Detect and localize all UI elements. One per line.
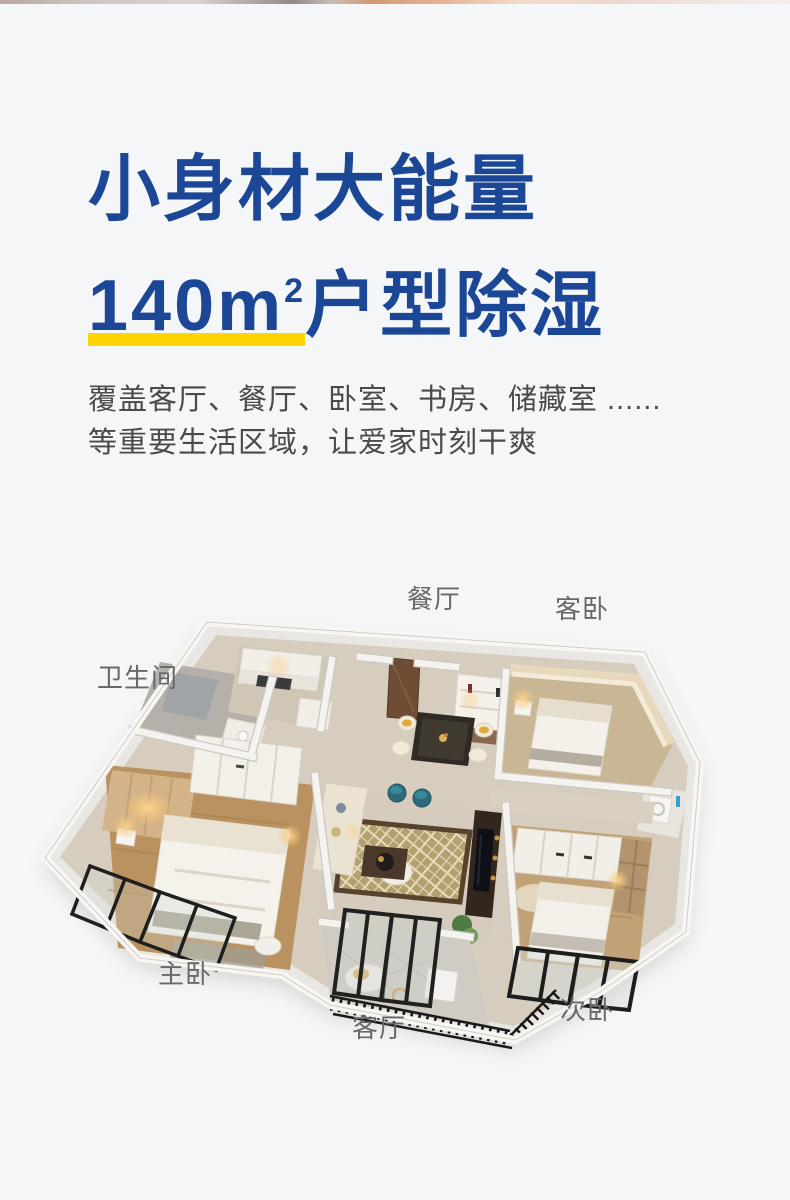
page: 小身材大能量 140m2户型除湿 覆盖客厅、餐厅、卧室、书房、储藏室 .....… [0, 0, 790, 1200]
hero-area-sup: 2 [284, 272, 303, 310]
hero-title: 小身材大能量 140m2户型除湿 [88, 140, 728, 357]
hero-area-value: 140m [88, 266, 284, 346]
label-living-room: 客厅 [352, 1008, 406, 1045]
label-master-bedroom: 主卧 [158, 954, 212, 991]
hero-title-line2-rest: 户型除湿 [305, 266, 605, 346]
hero-title-line1: 小身材大能量 [88, 150, 538, 230]
living-glass-partition [334, 910, 440, 1006]
label-guest-bedroom: 客卧 [555, 589, 609, 626]
label-bathroom: 卫生间 [97, 658, 178, 695]
entry-door [387, 658, 420, 720]
hero-area-highlight: 140m2 [88, 266, 305, 346]
hero-subtitle-line1: 覆盖客厅、餐厅、卧室、书房、储藏室 ...... [88, 384, 661, 416]
floorplan-illustration [0, 580, 790, 1080]
label-dining-room: 餐厅 [407, 579, 461, 616]
previous-section-edge [0, 0, 790, 4]
hero-subtitle-line2: 等重要生活区域，让爱家时刻干爽 [88, 427, 538, 459]
hero-section: 小身材大能量 140m2户型除湿 覆盖客厅、餐厅、卧室、书房、储藏室 .....… [88, 140, 728, 465]
floorplan-section: 餐厅 客卧 卫生间 主卧 客厅 次卧 [0, 580, 790, 1080]
hero-subtitle: 覆盖客厅、餐厅、卧室、书房、储藏室 ......等重要生活区域，让爱家时刻干爽 [88, 379, 728, 465]
label-second-bedroom: 次卧 [560, 990, 614, 1027]
